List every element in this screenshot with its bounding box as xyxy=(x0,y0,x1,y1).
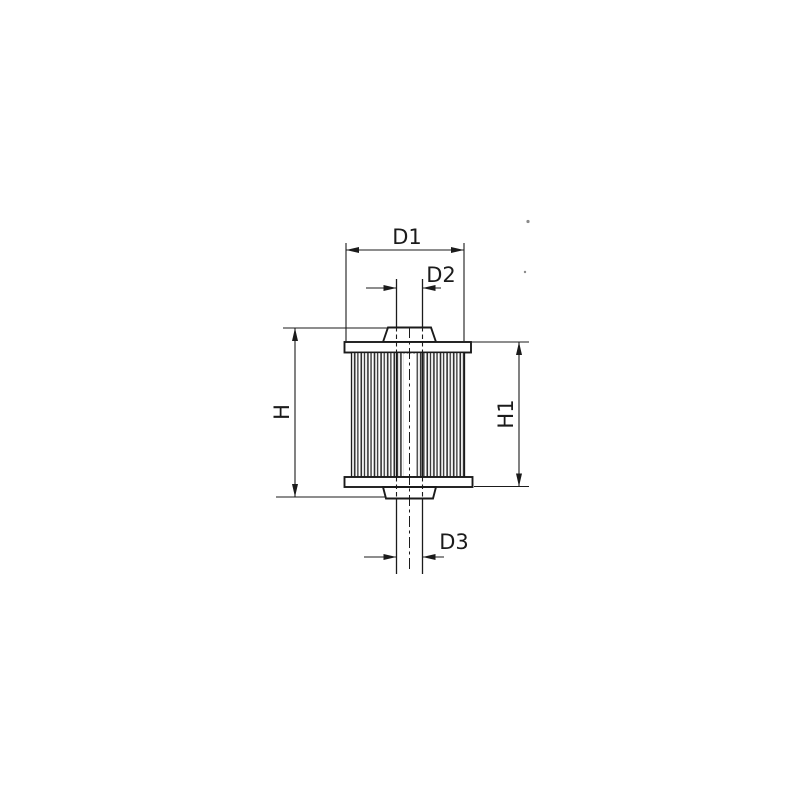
d1-arrow-left xyxy=(346,247,359,253)
d2-label: D2 xyxy=(426,263,456,287)
d3-arrow-left xyxy=(384,554,397,560)
scan-speck xyxy=(526,220,529,223)
d3-arrow-right xyxy=(423,554,436,560)
d1-arrow-right xyxy=(451,247,464,253)
h-arrow-top xyxy=(292,328,298,341)
filter-body xyxy=(345,328,473,499)
h-arrow-bottom xyxy=(292,484,298,497)
top-end-cap xyxy=(345,342,472,353)
bottom-end-cap xyxy=(345,477,473,487)
filter-technical-drawing: D1 D2 D3 H H1 xyxy=(0,0,800,800)
d3-label: D3 xyxy=(439,530,469,554)
drawing-page: D1 D2 D3 H H1 xyxy=(0,0,800,800)
dimension-d3: D3 xyxy=(364,530,469,560)
scan-speck xyxy=(524,271,526,273)
h1-arrow-bottom xyxy=(516,474,522,487)
dimension-d2: D2 xyxy=(366,263,456,291)
d2-arrow-left xyxy=(384,285,397,291)
d1-label: D1 xyxy=(392,225,422,249)
h-label: H xyxy=(270,404,294,420)
h1-label: H1 xyxy=(494,399,518,428)
dimension-h1: H1 xyxy=(472,342,529,487)
h1-arrow-top xyxy=(516,342,522,355)
